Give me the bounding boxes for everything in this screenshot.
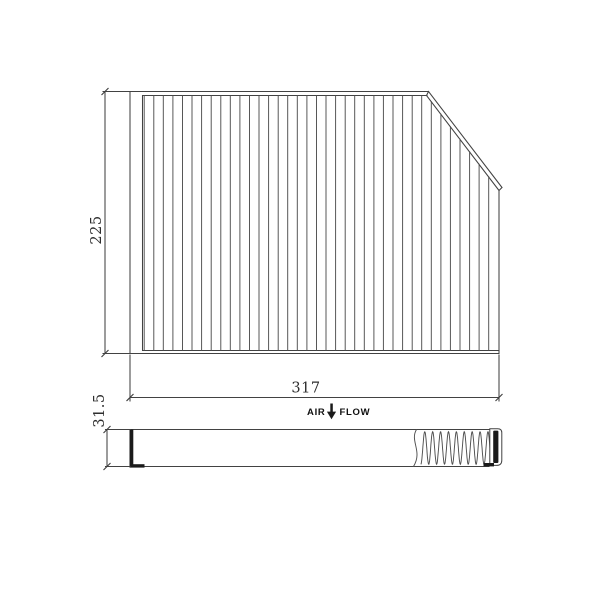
dimension-width: 317 (127, 355, 503, 401)
side-view-right-end-bar (493, 431, 498, 463)
airflow-label-left: AIR (307, 407, 325, 418)
pleat-coil (421, 432, 492, 465)
side-view-right-foot (484, 463, 495, 466)
filter-technical-drawing: 225 317 AIR FLOW (0, 0, 600, 600)
airflow-label: AIR FLOW (307, 404, 370, 420)
airflow-label-right: FLOW (340, 407, 371, 418)
pleat-lines (144, 96, 489, 351)
side-view (130, 429, 502, 468)
arrow-down-icon (327, 404, 336, 420)
top-view-inner-frame (143, 96, 500, 351)
top-view-outline (130, 92, 499, 354)
corner-chamfer-band (427, 92, 503, 191)
dimension-height: 225 (89, 88, 130, 357)
dimension-depth-extension-lines (106, 430, 131, 467)
break-line-wave (414, 430, 418, 467)
side-view-left-end-bar (130, 430, 134, 467)
side-view-left-foot (130, 464, 145, 467)
dimension-width-label: 317 (291, 381, 320, 397)
filter-diagram-svg: 225 317 AIR FLOW (0, 0, 600, 600)
dimension-height-extension-lines (103, 92, 130, 354)
top-view (130, 92, 502, 354)
dimension-depth-label: 31.5 (92, 393, 108, 427)
dimension-depth: 31.5 (92, 393, 130, 470)
dimension-height-label: 225 (89, 215, 105, 244)
